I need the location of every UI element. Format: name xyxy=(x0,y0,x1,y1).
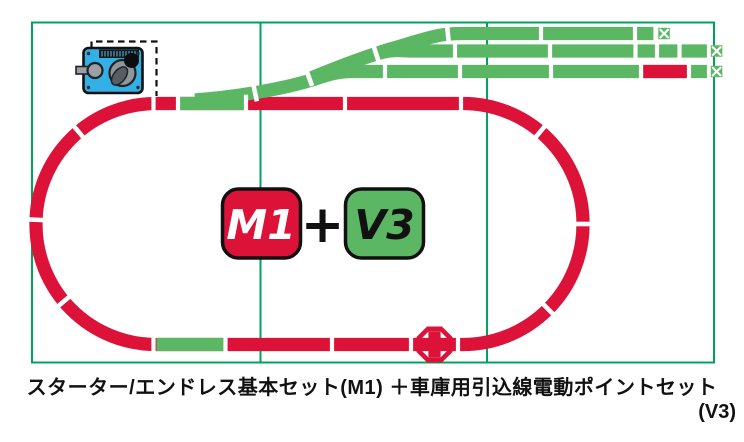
power-pack-controller-icon xyxy=(76,48,143,93)
track-end-bumper-icon xyxy=(711,66,723,78)
siding-track-3 xyxy=(195,72,709,101)
badge-m1-label: M1 xyxy=(226,201,295,249)
track-plan-diagram: M1 + V3 スターター/エンドレス基本セット(M1) ＋車庫用引込線電動ポイ… xyxy=(0,0,744,442)
badge-v3-label: V3 xyxy=(354,201,414,249)
caption-line-2: (V3) xyxy=(0,401,744,424)
track-end-bumper-icon xyxy=(711,45,723,57)
badge-plus-sign: + xyxy=(301,195,345,255)
oval-green-straight xyxy=(157,338,224,351)
caption-line-1: スターター/エンドレス基本セット(M1) ＋車庫用引込線電動ポイントセット xyxy=(0,371,744,400)
track-end-bumper-icon xyxy=(658,28,670,40)
power-pack-connector xyxy=(76,63,103,78)
turnout-green-track xyxy=(180,97,245,110)
badge-v3: V3 xyxy=(346,189,424,258)
rerailer-crossing-icon xyxy=(419,329,450,360)
siding-tracks xyxy=(195,34,709,101)
power-pack-knob xyxy=(124,53,139,68)
siding-red-segment xyxy=(643,65,687,78)
badge-m1: M1 xyxy=(223,189,301,258)
